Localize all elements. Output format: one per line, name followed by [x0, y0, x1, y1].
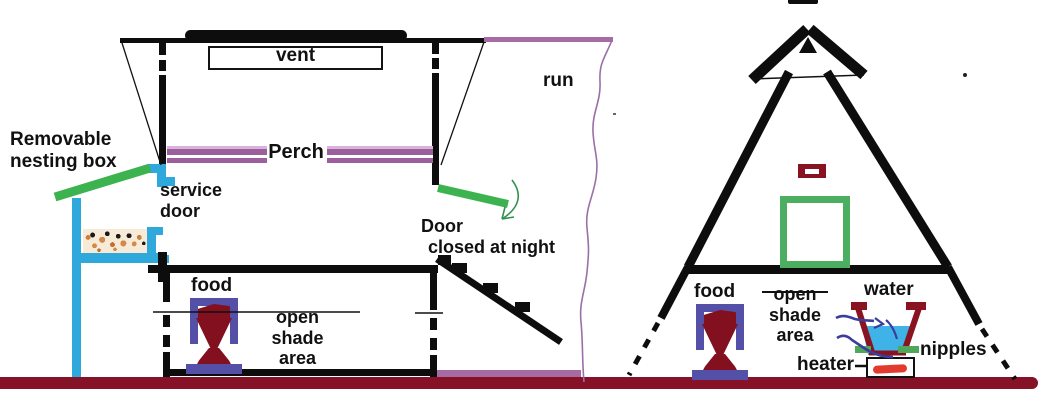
shade-left-line1: open [255, 307, 340, 328]
water-line-branch [886, 320, 897, 339]
nesting-box-right-stub [147, 227, 163, 235]
shade-right-leg [430, 338, 437, 350]
nesting-bedding [83, 229, 147, 253]
aframe-leg-right-dashed [982, 329, 1015, 379]
service-door-label: service door [160, 180, 222, 221]
run-top-line [484, 37, 613, 42]
aframe-leg-left-lower [661, 267, 688, 318]
coop-left-wall [159, 42, 166, 55]
door-swing-arrowhead [502, 207, 514, 219]
aframe-vent [798, 164, 826, 178]
feeder-rim [190, 298, 198, 344]
aframe-vent-slot [805, 169, 819, 174]
nipple-left [855, 346, 871, 353]
aframe-eave-line [752, 75, 864, 79]
service-door-label-line1: service [160, 180, 222, 201]
coop-diagram: vent Perch service door Removable nestin… [0, 0, 1056, 404]
ramp-step [515, 302, 530, 312]
coop-right-wall [432, 73, 439, 185]
feeder-rim [230, 298, 238, 344]
nipple-right [898, 346, 919, 353]
aframe-apex-triangle [799, 37, 817, 53]
feeder-funnel [196, 318, 232, 348]
coop-left-wall [159, 75, 166, 172]
coop-right-wall [432, 58, 439, 69]
coop-right-wall [432, 42, 439, 54]
feeder-rim [696, 304, 704, 350]
aframe-leg-left-dashed [629, 323, 658, 375]
ramp-step [452, 263, 467, 273]
feeder-right [692, 300, 748, 384]
feeder-feed [704, 310, 736, 324]
shade-left-leg [163, 315, 170, 327]
feeder-funnel [702, 324, 738, 354]
aframe-leg-right-lower [948, 267, 979, 324]
food-label-left: food [191, 275, 232, 297]
shade-left-line2: shade [255, 328, 340, 349]
water-line-upper [836, 316, 874, 321]
nesting-box-label: Removable nesting box [10, 129, 117, 173]
nipples-label: nipples [920, 339, 987, 361]
shade-right-line2: shade [757, 305, 833, 326]
ramp-step [483, 283, 498, 293]
shade-left-line3: area [255, 348, 340, 369]
shade-right-line3: area [757, 325, 833, 346]
pop-door-open [438, 188, 508, 204]
shade-right-leg [430, 272, 437, 310]
waterer-sides [858, 308, 919, 352]
rafter-line-left [122, 43, 161, 165]
shade-left-leg [163, 268, 170, 302]
feeder-base [186, 364, 242, 374]
shade-left-leg [163, 335, 170, 347]
coop-left-wall [159, 60, 166, 71]
heater-label: heater [797, 354, 854, 376]
water-label: water [864, 279, 914, 301]
rafter-line-right [441, 42, 484, 165]
shade-label-right: open shade area [757, 284, 833, 346]
nesting-box-post [72, 198, 81, 382]
perch-label: Perch [264, 141, 328, 164]
aframe-roof-left [752, 29, 807, 80]
stray-mark [963, 73, 967, 77]
ramp [437, 259, 561, 342]
nesting-box-label-line2: nesting box [10, 151, 117, 173]
feeder-feed [198, 304, 230, 318]
service-door-label-line2: door [160, 201, 222, 222]
food-label-right: food [694, 281, 735, 303]
run-fence-wavy-line [581, 40, 612, 382]
perch-bar-left [167, 146, 267, 163]
waterer-water [862, 326, 912, 355]
feeder-base [692, 370, 748, 380]
aframe-leg-left [688, 72, 789, 267]
ground-line [0, 377, 1038, 389]
water-line-arrowhead [874, 318, 883, 328]
nesting-box-label-line1: Removable [10, 129, 117, 151]
coop-floor [148, 265, 438, 273]
shade-right-leg [430, 318, 437, 330]
heater-box [866, 357, 915, 378]
heater-element [873, 364, 907, 374]
aframe-door-opening [780, 196, 850, 268]
feeder-left [186, 294, 242, 378]
perch-bar-right [327, 146, 433, 163]
shade-right-line1: open [757, 284, 833, 305]
stray-mark [613, 113, 616, 115]
vent-label: vent [208, 45, 383, 67]
door-note-line1: Door [421, 216, 463, 237]
door-note-line2: closed at night [428, 237, 555, 258]
door-swing-arrow [502, 180, 518, 219]
aframe-top-stub [788, 0, 818, 4]
run-label: run [543, 70, 574, 92]
aframe-roof-right [810, 29, 864, 75]
feeder-rim [736, 304, 744, 350]
shade-label-left: open shade area [255, 307, 340, 369]
